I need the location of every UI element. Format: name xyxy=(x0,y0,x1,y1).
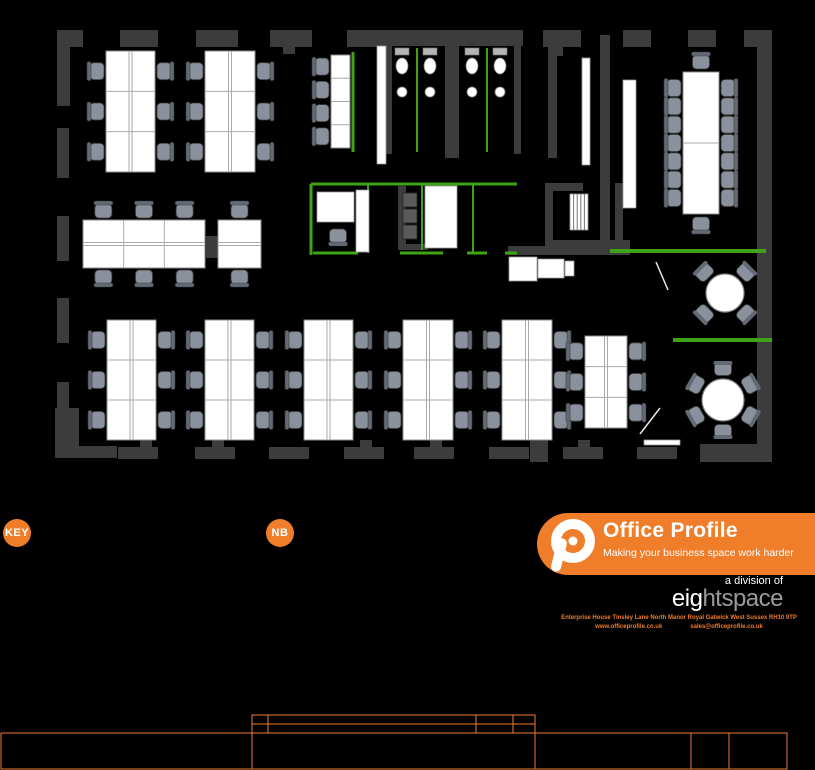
chair xyxy=(721,115,738,134)
desk-bank xyxy=(566,336,646,428)
chair xyxy=(285,331,302,350)
desk-bank xyxy=(186,320,273,440)
chair xyxy=(87,62,104,81)
chair xyxy=(256,371,273,390)
chair xyxy=(721,152,738,171)
chair xyxy=(186,331,203,350)
chair xyxy=(664,152,681,171)
chair xyxy=(256,331,273,350)
chair xyxy=(87,142,104,161)
address-line: Enterprise House Tinsley Lane North Mano… xyxy=(548,615,810,621)
chair xyxy=(87,102,104,121)
desk-bank xyxy=(285,320,372,440)
chair xyxy=(664,134,681,153)
desk-bank xyxy=(312,55,350,148)
chair xyxy=(329,229,348,246)
chair xyxy=(312,127,329,146)
chair xyxy=(384,331,401,350)
parent-brand-eightspace: eightspace xyxy=(672,585,783,613)
desk-bank xyxy=(186,51,274,172)
chair xyxy=(135,201,154,218)
chair xyxy=(721,134,738,153)
chair xyxy=(230,270,249,287)
chair xyxy=(230,201,249,218)
chair xyxy=(94,270,113,287)
round-tables xyxy=(685,260,762,439)
email-text: sales@officeprofile.co.uk xyxy=(690,624,763,630)
chair xyxy=(158,371,175,390)
chair xyxy=(157,62,174,81)
title-block xyxy=(1,715,787,769)
chair xyxy=(566,373,583,392)
nb-label: NB xyxy=(272,527,289,539)
desk-bank xyxy=(88,320,175,440)
chair xyxy=(256,411,273,430)
chair xyxy=(664,170,681,189)
round-table xyxy=(702,379,744,421)
parent-brand-gray: htspace xyxy=(702,585,783,612)
chair xyxy=(664,189,681,208)
chair xyxy=(175,201,194,218)
desk-bank xyxy=(384,320,472,440)
chair xyxy=(664,97,681,116)
chair xyxy=(721,79,738,98)
desk-bank xyxy=(483,320,571,440)
chair xyxy=(483,331,500,350)
office-profile-p-icon xyxy=(545,518,597,574)
chair xyxy=(257,102,274,121)
desk-bank xyxy=(83,201,205,287)
chair xyxy=(455,371,472,390)
chair xyxy=(629,342,646,361)
chair xyxy=(257,62,274,81)
floor-plan-canvas xyxy=(0,0,815,770)
chair xyxy=(355,371,372,390)
round-table xyxy=(706,274,744,312)
chair xyxy=(721,97,738,116)
chair xyxy=(355,331,372,350)
chair xyxy=(714,361,733,376)
chair xyxy=(566,403,583,422)
chair xyxy=(355,411,372,430)
brand-tagline: Making your business space work harder xyxy=(603,547,794,559)
chair xyxy=(157,102,174,121)
nb-badge: NB xyxy=(266,519,294,547)
chair xyxy=(664,115,681,134)
brand-name: Office Profile xyxy=(603,519,794,543)
meeting-room xyxy=(664,52,738,234)
website-text: www.officeprofile.co.uk xyxy=(595,624,662,630)
chair xyxy=(312,104,329,123)
chair xyxy=(157,142,174,161)
chair xyxy=(721,189,738,208)
chair xyxy=(186,102,203,121)
stairs xyxy=(570,194,588,230)
chair xyxy=(629,373,646,392)
office-profile-logo-panel: Office Profile Making your business spac… xyxy=(537,513,815,575)
chair xyxy=(88,371,105,390)
chair xyxy=(158,331,175,350)
key-badge: KEY xyxy=(3,519,31,547)
chair xyxy=(186,142,203,161)
desk-bank xyxy=(87,51,174,172)
contact-line: www.officeprofile.co.uk sales@officeprof… xyxy=(548,624,810,630)
parent-brand-white: eig xyxy=(672,585,703,612)
chair xyxy=(88,331,105,350)
chair xyxy=(88,411,105,430)
chair xyxy=(257,142,274,161)
chair xyxy=(483,411,500,430)
chair xyxy=(186,62,203,81)
chair xyxy=(692,52,711,69)
chair xyxy=(175,270,194,287)
chair xyxy=(714,425,733,440)
chair xyxy=(566,342,583,361)
chair xyxy=(384,411,401,430)
chair xyxy=(455,331,472,350)
chair xyxy=(94,201,113,218)
chair xyxy=(721,170,738,189)
desk-bank xyxy=(218,201,261,287)
chair xyxy=(158,411,175,430)
chair xyxy=(483,371,500,390)
chair xyxy=(692,217,711,234)
chair xyxy=(312,80,329,99)
chair xyxy=(384,371,401,390)
key-label: KEY xyxy=(5,527,29,539)
chair xyxy=(285,371,302,390)
chair xyxy=(135,270,154,287)
chair xyxy=(285,411,302,430)
chair xyxy=(186,411,203,430)
chair xyxy=(664,79,681,98)
chair xyxy=(186,371,203,390)
chair xyxy=(629,403,646,422)
chair xyxy=(312,57,329,76)
chair xyxy=(455,411,472,430)
